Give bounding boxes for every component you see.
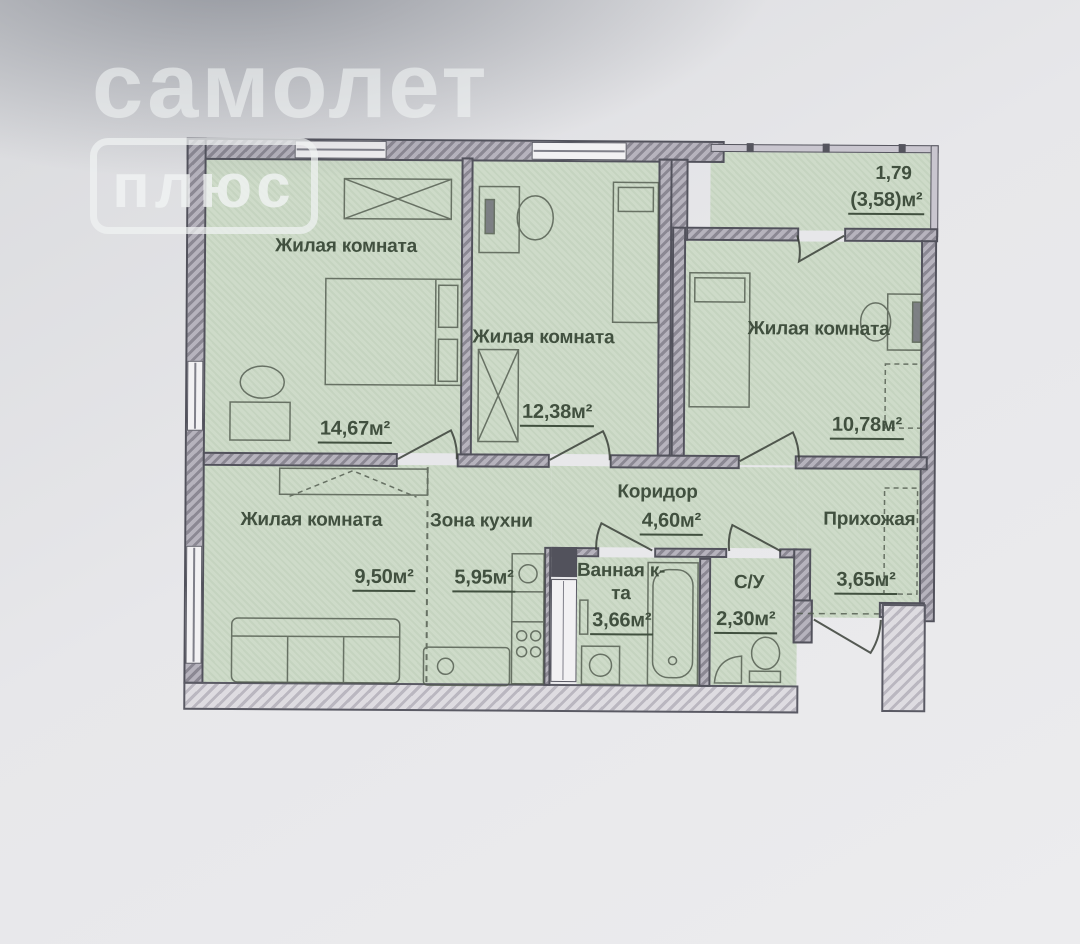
room-area: 3,65м²	[834, 569, 897, 595]
room-label: С/У	[734, 572, 764, 594]
bed-icon	[613, 182, 659, 322]
room-label: Зона кухни	[430, 510, 533, 533]
door-entry	[814, 620, 881, 653]
watermark-badge: плюс	[90, 138, 318, 234]
room-area: 10,78м²	[830, 414, 904, 440]
door-living1	[398, 430, 457, 459]
chair-icon	[517, 196, 553, 240]
sink-icon	[519, 565, 537, 583]
toilet-icon	[751, 637, 779, 669]
photo-of-floor-plan: самолет плюс	[0, 0, 1080, 944]
door-living2	[550, 431, 610, 460]
watermark-badge-label: плюс	[112, 151, 295, 222]
room-area: 3,66м²	[590, 609, 653, 635]
door-wc	[729, 525, 782, 551]
room-area: 14,67м²	[318, 418, 392, 444]
room-area: 4,60м²	[640, 509, 703, 535]
room-label: Жилая комната	[473, 326, 615, 349]
room-label: Жилая комната	[275, 235, 417, 258]
door-balcony	[797, 235, 844, 261]
zone-divider	[426, 467, 427, 685]
corner-sink-icon	[714, 656, 741, 683]
sofa-icon	[231, 618, 399, 683]
room-label: Жилая комната	[748, 318, 890, 341]
room-area: 5,95м²	[452, 566, 515, 592]
watermark-brand: самолет	[92, 34, 489, 139]
balcony-reduced-area: 1,79	[875, 163, 911, 185]
balcony-full-area: (3,58)м²	[848, 189, 924, 215]
room-label: Ванная к-та	[571, 559, 671, 606]
chair-icon	[240, 366, 284, 398]
room-area: 2,30м²	[714, 608, 777, 634]
room-area: 12,38м²	[520, 401, 594, 427]
kitchen-counter-icon	[511, 554, 544, 684]
room-label: Прихожая	[823, 509, 915, 532]
room-area: 9,50м²	[352, 566, 415, 592]
door-living3	[740, 432, 799, 461]
washer-icon	[581, 646, 619, 684]
room-label: Коридор	[617, 481, 698, 503]
bed-icon	[325, 279, 462, 386]
room-label: Жилая комната	[240, 509, 382, 532]
bed-icon	[689, 273, 750, 407]
desk-icon	[230, 402, 290, 440]
table-icon	[423, 647, 509, 686]
stove-icon	[517, 631, 527, 641]
